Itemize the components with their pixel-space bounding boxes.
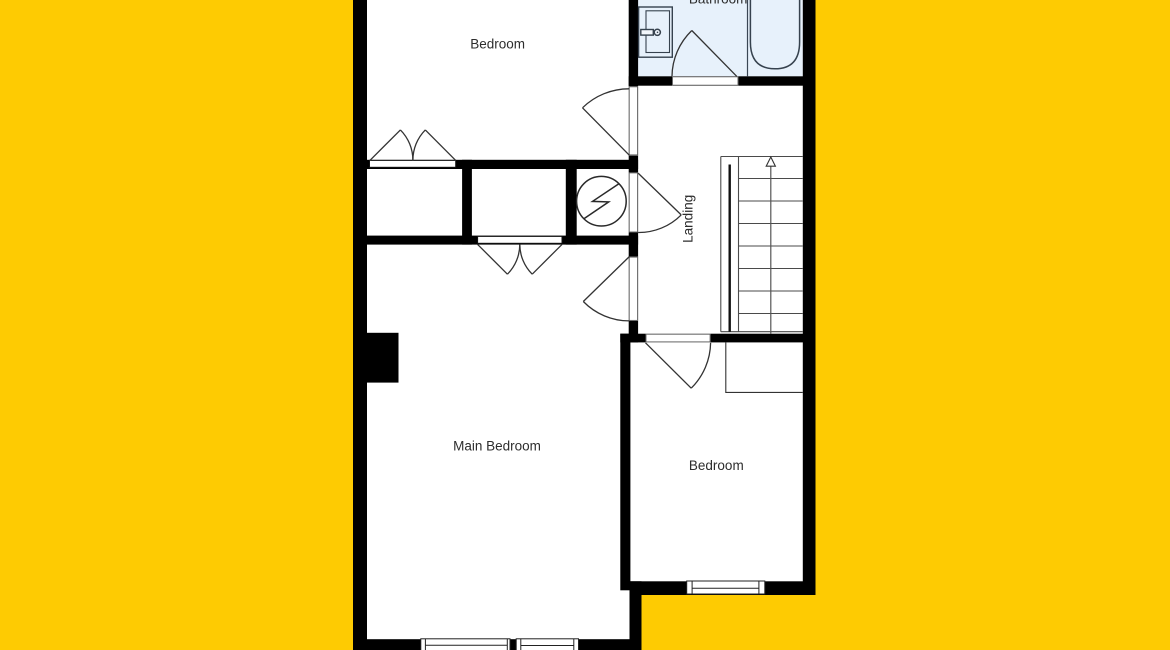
svg-text:Bedroom: Bedroom — [470, 36, 525, 51]
svg-text:Main Bedroom: Main Bedroom — [453, 438, 541, 453]
svg-text:Bathroom: Bathroom — [689, 0, 748, 6]
svg-text:Landing: Landing — [681, 195, 696, 243]
svg-text:Bedroom: Bedroom — [689, 458, 744, 473]
